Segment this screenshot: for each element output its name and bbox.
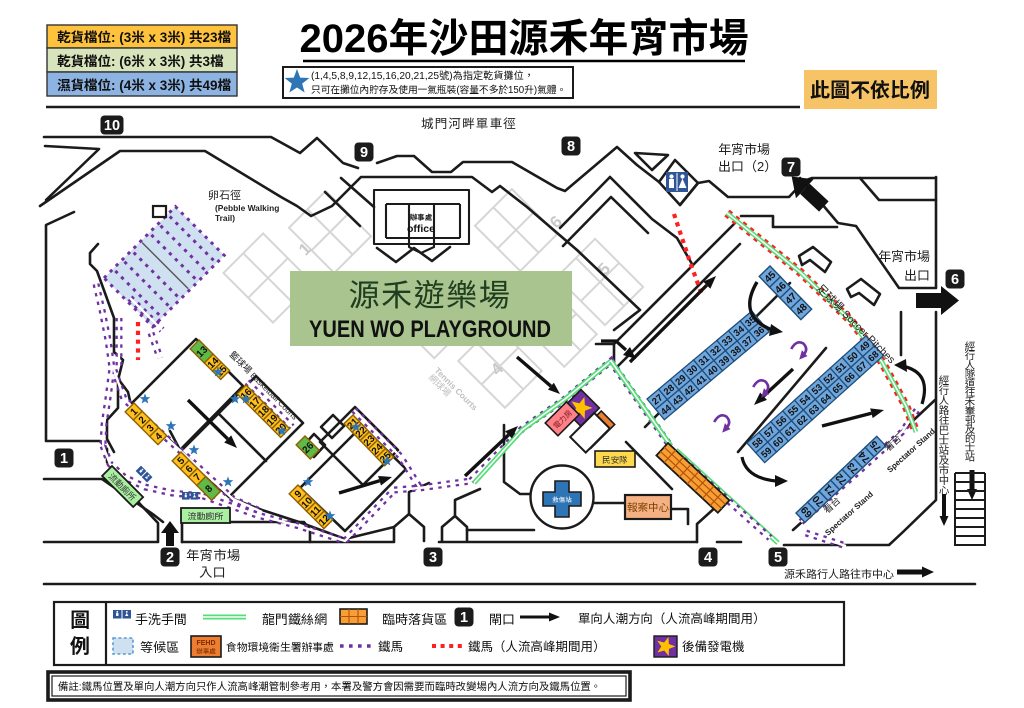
- svg-text:圖: 圖: [70, 604, 90, 633]
- svg-text:出口: 出口: [904, 265, 930, 284]
- svg-text:例: 例: [70, 630, 90, 659]
- svg-text:臨時落貨區: 臨時落貨區: [382, 609, 447, 628]
- svg-text:9: 9: [360, 145, 368, 161]
- svg-text:站: 站: [965, 449, 976, 464]
- svg-text:食物環境衛生署辦事處: 食物環境衛生署辦事處: [225, 639, 334, 655]
- svg-text:10: 10: [104, 118, 120, 134]
- svg-text:6: 6: [951, 272, 959, 288]
- svg-text:Trail): Trail): [215, 213, 235, 223]
- svg-text:手洗手間: 手洗手間: [135, 609, 187, 628]
- svg-text:入口: 入口: [199, 562, 226, 581]
- svg-text:辦事處: 辦事處: [409, 212, 433, 223]
- svg-text:等候區: 等候區: [140, 637, 179, 656]
- svg-text:1: 1: [460, 610, 468, 626]
- svg-text:救傷站: 救傷站: [551, 495, 572, 504]
- svg-text:閘口: 閘口: [489, 609, 515, 628]
- svg-text:3: 3: [429, 550, 437, 566]
- svg-text:源禾遊樂場: 源禾遊樂場: [349, 270, 512, 315]
- svg-text:鐵馬: 鐵馬: [378, 636, 403, 655]
- svg-text:4: 4: [704, 550, 712, 566]
- svg-text:龍門鐵絲網: 龍門鐵絲網: [262, 609, 327, 628]
- svg-text:YUEN WO PLAYGROUND: YUEN WO PLAYGROUND: [309, 316, 551, 343]
- svg-text:office: office: [407, 223, 435, 235]
- svg-text:鐵馬（人流高峰期間用）: 鐵馬（人流高峰期間用）: [468, 636, 606, 655]
- svg-text:8: 8: [567, 139, 575, 155]
- svg-text:卵石徑: 卵石徑: [208, 187, 241, 203]
- svg-text:源禾路行人路往市中心: 源禾路行人路往市中心: [784, 566, 894, 582]
- svg-text:年宵市場: 年宵市場: [878, 246, 930, 265]
- svg-text:7: 7: [787, 160, 795, 176]
- svg-text:2: 2: [166, 550, 174, 566]
- svg-text:1: 1: [60, 451, 68, 467]
- svg-text:出口（2）: 出口（2）: [718, 156, 777, 175]
- svg-text:後備發電機: 後備發電機: [682, 636, 745, 655]
- svg-text:單向人潮方向（人流高峰期間用）: 單向人潮方向（人流高峰期間用）: [578, 608, 766, 627]
- svg-text:5: 5: [774, 550, 782, 566]
- svg-text:備註:鐵馬位置及單向人潮方向只作人流高峰潮管制參考用，本署及: 備註:鐵馬位置及單向人潮方向只作人流高峰潮管制參考用，本署及警方會因需要而臨時改…: [57, 678, 601, 693]
- svg-text:辦事處: 辦事處: [196, 646, 216, 656]
- svg-text:乾貨檔位: (6米 x 3米) 共3檔: 乾貨檔位: (6米 x 3米) 共3檔: [57, 50, 224, 70]
- svg-text:民安隊: 民安隊: [602, 454, 628, 466]
- svg-text:報案中心: 報案中心: [627, 500, 669, 515]
- svg-text:(Pebble Walking: (Pebble Walking: [215, 203, 279, 213]
- svg-text:流動廁所: 流動廁所: [187, 510, 223, 523]
- svg-text:城門河畔單車徑: 城門河畔單車徑: [421, 113, 517, 132]
- svg-text:只可在攤位內貯存及使用一氣瓶裝(容量不多於150升)氣體。: 只可在攤位內貯存及使用一氣瓶裝(容量不多於150升)氣體。: [311, 82, 566, 96]
- svg-text:此圖不依比例: 此圖不依比例: [810, 74, 930, 103]
